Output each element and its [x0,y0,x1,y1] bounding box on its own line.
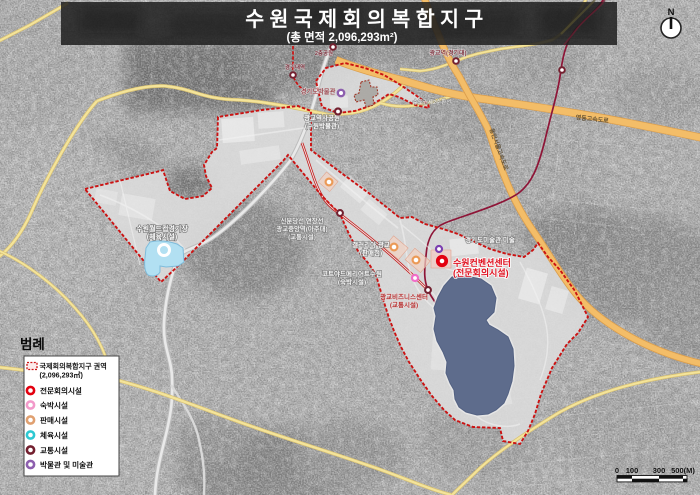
svg-text:전문회의시설: 전문회의시설 [40,386,82,396]
svg-text:(수원박물관): (수원박물관) [305,121,339,130]
svg-text:100: 100 [626,466,639,475]
svg-text:경기도미술관 미술: 경기도미술관 미술 [465,235,515,244]
svg-text:국제회의복합지구 권역: 국제회의복합지구 권역 [40,362,107,371]
svg-text:광교역(경기대): 광교역(경기대) [429,49,466,57]
svg-text:수원컨벤션센터: 수원컨벤션센터 [453,257,511,268]
svg-text:코트야드메리어트수원: 코트야드메리어트수원 [322,269,382,278]
svg-text:광교역사공원: 광교역사공원 [304,113,340,122]
svg-text:(전문회의시설): (전문회의시설) [453,267,509,278]
svg-text:박물관 및 미술관: 박물관 및 미술관 [40,460,93,470]
svg-text:2층공원: 2층공원 [315,49,333,57]
svg-text:경기대역: 경기대역 [285,63,305,71]
svg-text:판매시설: 판매시설 [40,415,68,425]
svg-text:신분당선 연장선: 신분당선 연장선 [281,216,324,225]
svg-text:체육시설: 체육시설 [40,430,68,440]
svg-text:N: N [668,7,675,18]
svg-text:수원월드컵경기장: 수원월드컵경기장 [136,224,188,233]
svg-text:(2,096,293㎡): (2,096,293㎡) [40,371,84,380]
svg-text:500(M): 500(M) [671,466,695,475]
svg-text:(숙박시설): (숙박시설) [338,277,366,286]
svg-text:교통시설: 교통시설 [40,445,68,455]
svg-text:(교통시설): (교통시설) [390,300,418,309]
svg-text:광교비즈니스센터: 광교비즈니스센터 [380,292,428,301]
svg-text:0: 0 [615,466,619,475]
svg-text:범례: 범례 [20,337,45,352]
svg-text:(판매점): (판매점) [360,248,382,257]
svg-text:(교통시설): (교통시설) [288,232,316,241]
svg-text:광교중앙역(아주대): 광교중앙역(아주대) [276,224,327,233]
svg-text:수원국제회의복합지구: 수원국제회의복합지구 [245,7,489,31]
svg-text:경기도박물관: 경기도박물관 [301,87,336,96]
svg-text:수도권제2순환선: 수도권제2순환선 [413,98,451,106]
svg-text:숙박시설: 숙박시설 [40,400,68,410]
svg-text:300: 300 [653,466,666,475]
svg-text:(총 면적 2,096,293m²): (총 면적 2,096,293m²) [286,30,397,44]
svg-text:갤러리아 광교: 갤러리아 광교 [352,240,390,249]
svg-text:(체육시설): (체육시설) [147,232,177,241]
